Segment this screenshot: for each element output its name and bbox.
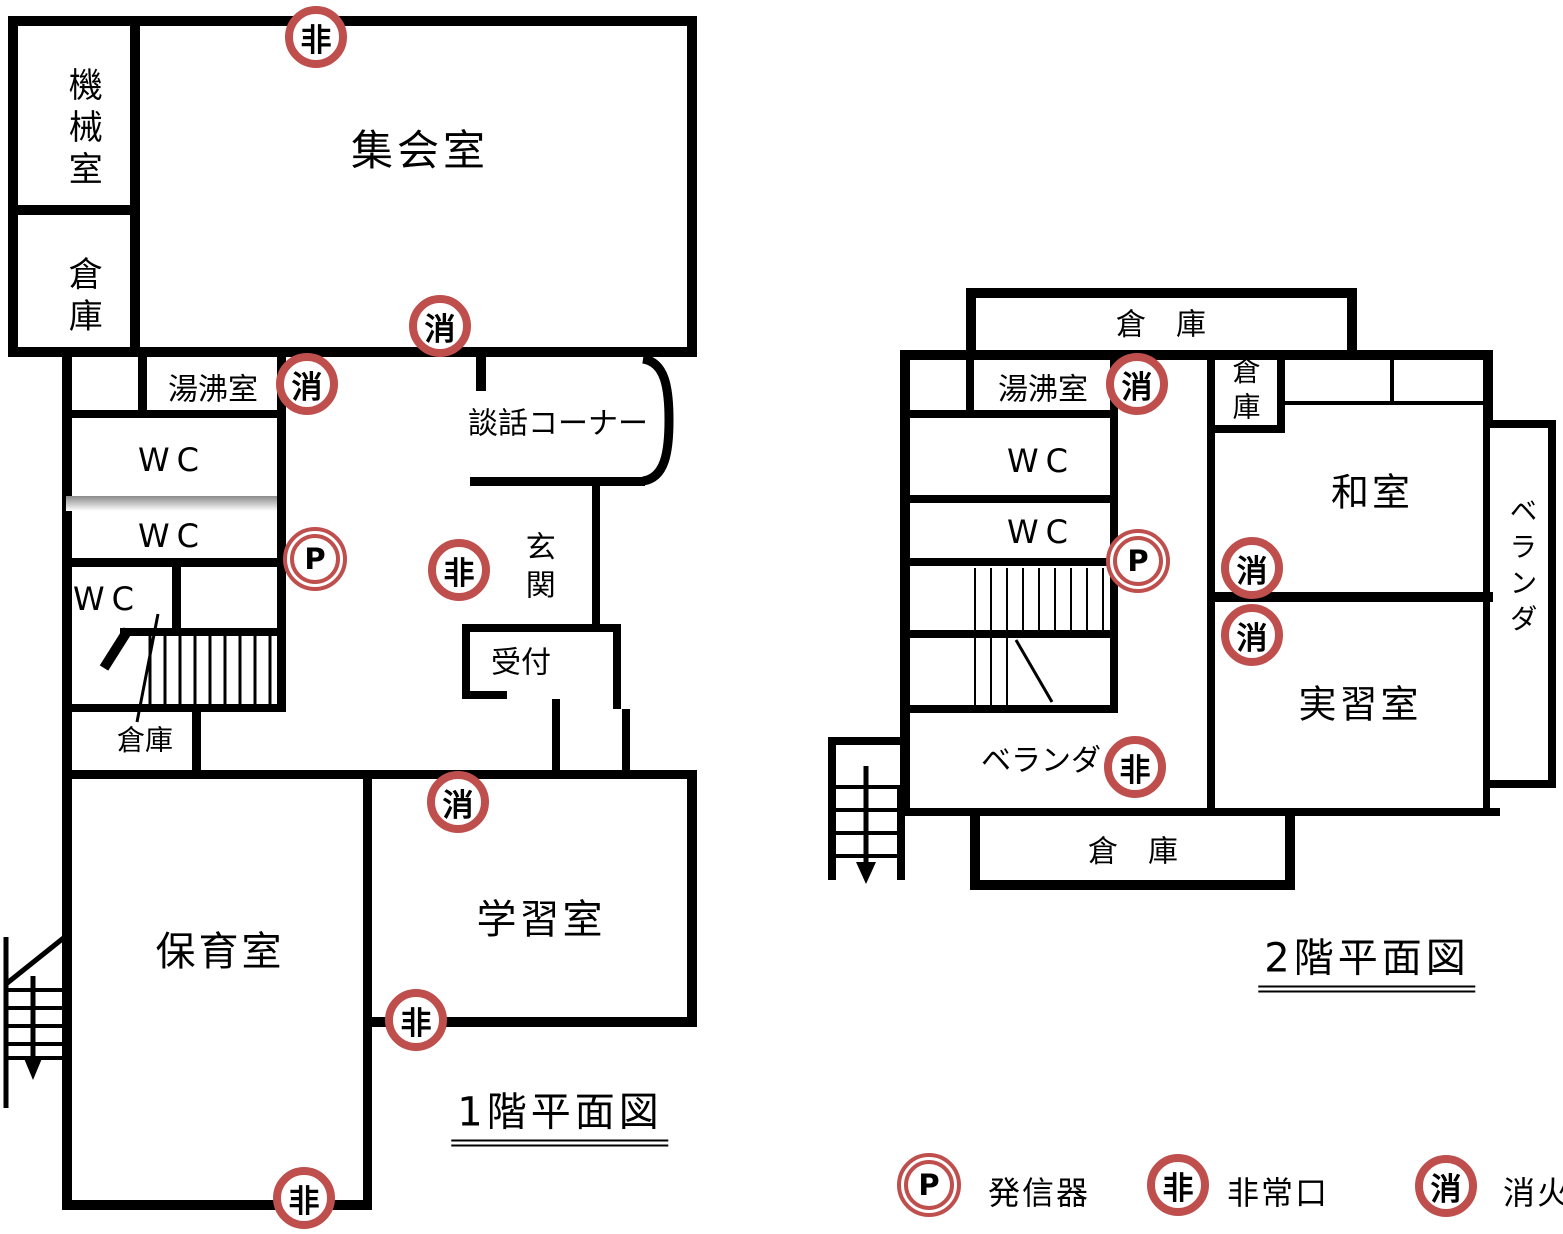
fire-extinguisher-marker: 消 [1106, 353, 1168, 415]
room-label-storage-mid: 倉庫 [117, 723, 173, 758]
fire-extinguisher-marker: 消 [427, 771, 489, 833]
fire-extinguisher-marker: 消 [276, 353, 338, 415]
room-label-kettle-room: 湯沸室 [168, 371, 258, 409]
room-label-entrance: 玄関 [518, 531, 556, 607]
room-label-veranda-bottom: ベランダ [981, 742, 1101, 780]
room-label-wc-lower-2f: WC [1007, 512, 1075, 552]
room-label-machine-room: 機械室 [61, 67, 104, 193]
marker-glyph: 消 [1237, 613, 1268, 658]
floor-plan-page: 機械室 倉庫 集会室 湯沸室 談話コーナー WC WC WC 玄関 受付 倉庫 … [0, 0, 1563, 1234]
room-label-storage-top: 倉 庫 [1116, 306, 1206, 344]
legend-transmitter-icon: P [897, 1153, 961, 1217]
emergency-exit-marker: 非 [1104, 736, 1166, 798]
marker-glyph: P [304, 542, 325, 576]
room-label-training-room: 実習室 [1298, 681, 1421, 729]
marker-glyph: 消 [443, 780, 474, 825]
marker-glyph: 消 [292, 362, 323, 407]
fire-extinguisher-marker: 消 [1221, 604, 1283, 666]
marker-glyph: 消 [425, 304, 456, 349]
room-label-chat-corner: 談話コーナー [468, 405, 648, 443]
legend-emergency-exit-label: 非常口 [1227, 1168, 1329, 1214]
fire-extinguisher-marker: 消 [1221, 537, 1283, 599]
floor1-title: 1階平面図 [451, 1080, 668, 1147]
room-label-assembly-room: 集会室 [351, 125, 489, 178]
emergency-exit-marker: 非 [385, 989, 447, 1051]
room-label-wc-middle: WC [138, 516, 206, 556]
room-label-storage-small: 倉庫 [1228, 356, 1263, 428]
marker-glyph: 消 [1237, 546, 1268, 591]
marker-glyph: 非 [401, 998, 432, 1043]
marker-glyph: P [1127, 544, 1148, 578]
room-label-kettle-room-2f: 湯沸室 [998, 371, 1088, 409]
legend-transmitter-label: 発信器 [988, 1168, 1090, 1214]
transmitter-marker: P [283, 527, 347, 591]
marker-glyph: 非 [301, 15, 332, 60]
marker-glyph: P [918, 1168, 939, 1202]
emergency-exit-marker: 非 [428, 539, 490, 601]
room-label-reception: 受付 [491, 644, 551, 682]
marker-glyph: 消 [1122, 362, 1153, 407]
floor2-title: 2階平面図 [1258, 926, 1475, 993]
room-label-nursery-room: 保育室 [156, 927, 285, 977]
legend-fire-extinguisher-label: 消火器 [1503, 1168, 1563, 1214]
room-label-storage-nw: 倉庫 [61, 256, 104, 340]
marker-glyph: 非 [1120, 745, 1151, 790]
legend-emergency-exit-icon: 非 [1147, 1154, 1209, 1216]
floor-plan-walls [0, 0, 1563, 1234]
room-label-study-room: 学習室 [477, 895, 606, 945]
emergency-exit-marker: 非 [273, 1167, 335, 1229]
room-label-storage-bottom: 倉 庫 [1088, 833, 1178, 871]
room-label-wc-upper-2f: WC [1007, 441, 1075, 481]
marker-glyph: 非 [289, 1176, 320, 1221]
room-label-japanese-room: 和室 [1331, 469, 1413, 517]
emergency-exit-marker: 非 [285, 6, 347, 68]
floor2-walls [828, 288, 1556, 890]
marker-glyph: 消 [1431, 1164, 1462, 1209]
marker-glyph: 非 [1163, 1163, 1194, 1208]
legend-fire-extinguisher-icon: 消 [1415, 1155, 1477, 1217]
room-label-wc-upper: WC [138, 440, 206, 480]
marker-glyph: 非 [444, 548, 475, 593]
transmitter-marker: P [1106, 529, 1170, 593]
fire-extinguisher-marker: 消 [409, 295, 471, 357]
room-label-veranda-right: ベランダ [1505, 496, 1540, 640]
room-label-wc-lower: WC [73, 579, 141, 619]
